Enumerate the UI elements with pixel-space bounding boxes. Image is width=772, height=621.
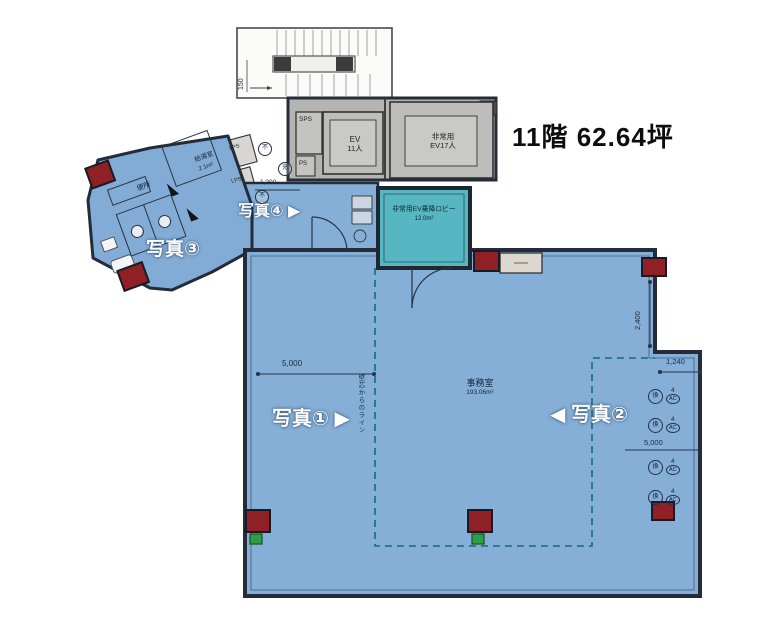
ac-label: AC xyxy=(666,423,680,433)
ac-label: AC xyxy=(666,495,680,505)
photo-label-1: 写真① ▶ xyxy=(272,409,350,430)
photo-1-text: 写真① xyxy=(272,408,329,430)
dim-150: 150 xyxy=(238,78,245,90)
lobby-label: 非常用EV乗降ロビー xyxy=(380,206,468,213)
photo-label-2: ◀ 写真② xyxy=(550,405,628,426)
ac-unit-row: 換 4AC xyxy=(648,417,680,433)
photo-4-arrow-icon: ▶ xyxy=(288,203,300,220)
stair-post xyxy=(274,57,291,71)
lobby-area: 12.0m² xyxy=(380,216,468,222)
floor-title: 11階 62.64坪 xyxy=(512,124,674,151)
staircase xyxy=(237,28,392,98)
vent-icon: 換 xyxy=(648,490,663,505)
ac-unit-row: 換 4AC xyxy=(648,489,680,505)
photo-2-text: 写真② xyxy=(571,404,628,426)
green-marker xyxy=(472,534,484,544)
photo-label-3: 写真③ xyxy=(146,240,200,260)
dim-1240: 1,240 xyxy=(666,358,685,366)
ps-label: PS xyxy=(299,161,307,167)
circled-mark-a: 不 xyxy=(258,142,272,156)
elevator-block xyxy=(288,98,497,180)
net-line-note: 壁芯からのライン xyxy=(356,374,363,486)
ac-label: AC xyxy=(666,465,680,475)
ac-unit-row: 換 4AC xyxy=(648,459,680,475)
vent-icon: 換 xyxy=(648,460,663,475)
dim-1200: 1,200 xyxy=(260,180,276,187)
circled-mark-c: 不 xyxy=(255,190,269,204)
dim-2400: 2,400 xyxy=(634,311,642,330)
floor-plan-canvas xyxy=(0,0,772,621)
angled-wing xyxy=(77,131,252,290)
ev-lobby-area xyxy=(378,188,470,268)
dim-5000-right: 5,000 xyxy=(644,439,663,447)
photo-label-4: 写真④ ▶ xyxy=(238,204,300,221)
sps-label: SPS xyxy=(299,117,312,124)
stair-post xyxy=(336,57,353,71)
ac-label: AC xyxy=(666,394,680,404)
green-marker xyxy=(250,534,262,544)
circled-mark-b: 充 xyxy=(278,162,292,176)
ev-main-label-2: 11人 xyxy=(337,145,373,153)
vent-icon: 換 xyxy=(648,389,663,404)
office-room-label: 事務室 xyxy=(440,379,520,388)
ev-emergency-label-1: 非常用 xyxy=(421,133,465,141)
ac-unit-row: 換 4AC xyxy=(648,388,680,404)
dim-5000-left: 5,000 xyxy=(282,360,302,368)
corridor-cabinet xyxy=(352,211,372,224)
photo-2-arrow-icon: ◀ xyxy=(550,404,565,426)
ev-emergency-label-2: EV17人 xyxy=(421,142,465,150)
vent-icon: 換 xyxy=(648,418,663,433)
photo-4-text: 写真④ xyxy=(238,203,284,220)
office-room-area: 193.06m² xyxy=(440,390,520,397)
corridor-cabinet xyxy=(352,196,372,209)
floor-plan-page: 11階 62.64坪 写真③ 写真④ ▶ 写真① ▶ ◀ 写真② 事務室 193… xyxy=(0,0,772,621)
photo-1-arrow-icon: ▶ xyxy=(335,408,350,430)
